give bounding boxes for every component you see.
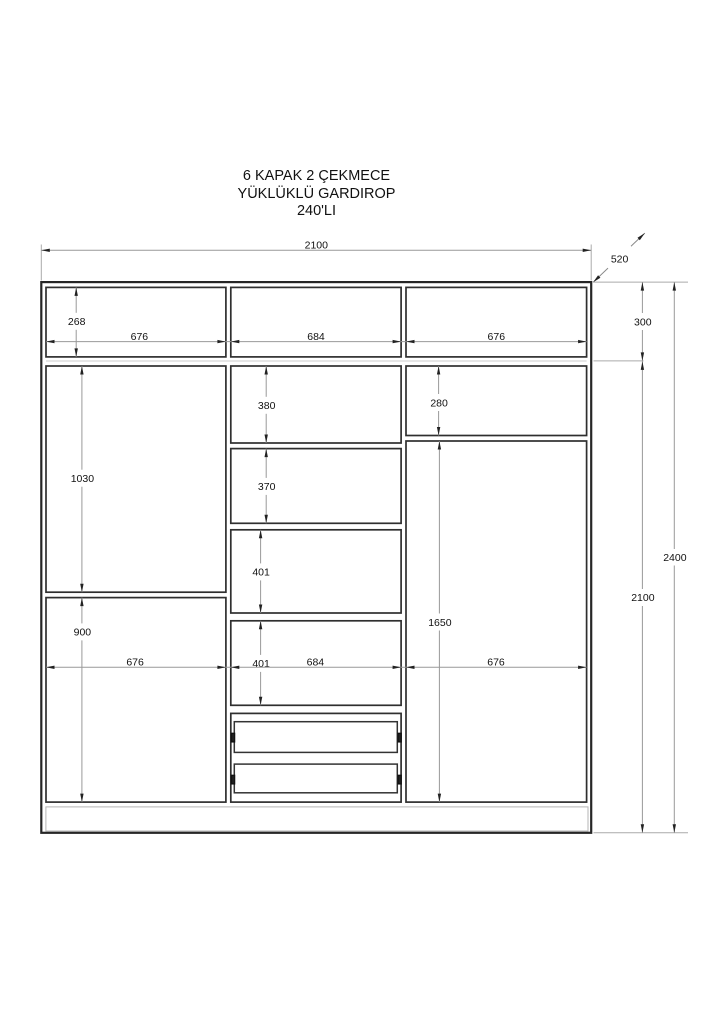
svg-text:900: 900 [74, 627, 92, 639]
svg-text:280: 280 [430, 397, 448, 409]
svg-text:401: 401 [252, 567, 270, 579]
svg-text:676: 676 [131, 331, 149, 343]
svg-text:401: 401 [252, 658, 270, 670]
svg-text:300: 300 [634, 316, 652, 328]
svg-text:2100: 2100 [631, 592, 655, 604]
svg-text:1030: 1030 [71, 473, 95, 485]
svg-text:676: 676 [487, 657, 505, 669]
svg-text:2100: 2100 [305, 239, 329, 251]
svg-text:380: 380 [258, 400, 276, 412]
svg-text:2400: 2400 [663, 552, 687, 564]
svg-text:268: 268 [68, 316, 86, 328]
svg-text:520: 520 [611, 253, 629, 265]
svg-text:676: 676 [488, 331, 506, 343]
svg-text:676: 676 [126, 657, 144, 669]
svg-text:684: 684 [307, 331, 325, 343]
svg-text:370: 370 [258, 481, 276, 493]
svg-text:1650: 1650 [428, 617, 452, 629]
svg-text:684: 684 [307, 657, 325, 669]
